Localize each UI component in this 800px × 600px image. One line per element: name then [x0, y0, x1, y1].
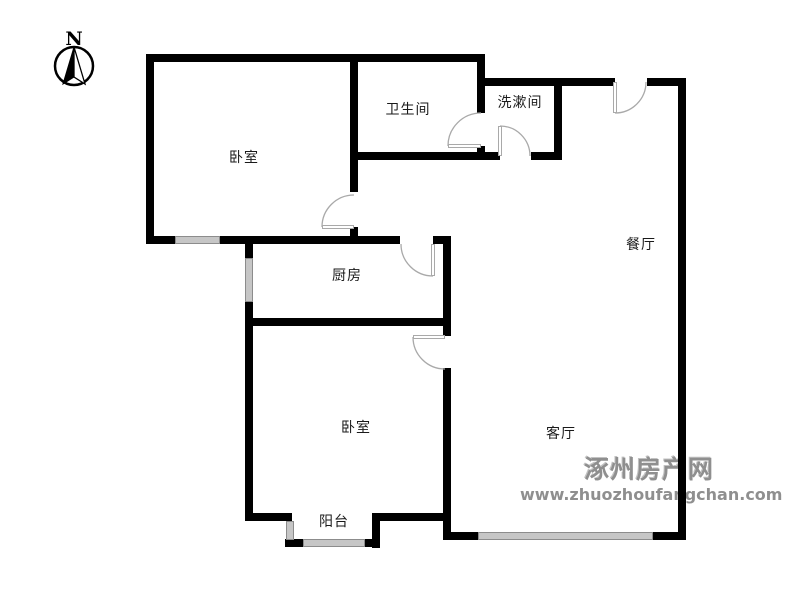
floorplan-canvas: 卧室卫生间洗漱间餐厅厨房卧室客厅阳台 N — [0, 0, 800, 600]
room-label-washroom: 洗漱间 — [498, 95, 543, 111]
wall-center-lower — [443, 368, 451, 540]
wall-kitchen-left-lower — [245, 302, 253, 521]
door-leaf-washroom-door — [499, 127, 502, 156]
compass-north-label: N — [65, 28, 82, 50]
door-leaf-entrance-door — [614, 83, 617, 113]
window-balcony-bottom-window — [303, 540, 365, 547]
wall-top-right-a — [477, 78, 615, 86]
wall-mid-right — [433, 236, 451, 244]
wall-right-outer — [678, 78, 686, 540]
wall-bed2-bottom-right — [372, 513, 451, 521]
room-label-kitchen: 厨房 — [332, 268, 362, 284]
door-leaf-bedroom2-door — [414, 336, 445, 339]
room-label-bathroom: 卫生间 — [386, 102, 431, 118]
wall-washroom-right — [554, 78, 562, 160]
walls-layer — [146, 54, 686, 548]
compass-needle-dark-half — [63, 47, 74, 84]
wall-top-main — [146, 54, 485, 62]
room-label-living-room: 客厅 — [546, 425, 576, 442]
window-living-bottom-window — [478, 533, 653, 540]
wall-balcony-right — [372, 513, 380, 548]
door-leaf-kitchen-door — [432, 245, 435, 276]
wall-kitchen-bottom — [245, 318, 451, 326]
wall-kitchen-left-upper — [245, 244, 253, 258]
door-leaf-bedroom1-door — [323, 226, 354, 229]
wall-bed1-right-lower — [350, 227, 358, 244]
wall-left-outer — [146, 54, 154, 244]
room-labels-layer: 卧室卫生间洗漱间餐厅厨房卧室客厅阳台 — [229, 95, 656, 530]
room-label-bedroom-1: 卧室 — [229, 149, 259, 166]
wall-bath-right-upper — [477, 54, 485, 113]
room-label-bedroom-2: 卧室 — [341, 419, 371, 436]
window-bedroom1-window — [175, 237, 220, 244]
compass-needle-light-half — [74, 47, 85, 84]
window-kitchen-left-window — [246, 258, 253, 302]
wall-mid-center — [220, 236, 400, 244]
room-label-dining-room: 餐厅 — [626, 237, 656, 253]
wall-bath-right-lower — [477, 146, 485, 160]
compass-rose: N — [55, 28, 93, 85]
wall-balcony-corner-left — [285, 539, 303, 547]
wall-bed1-right-upper — [350, 54, 358, 192]
wall-center-upper — [443, 244, 451, 336]
floorplan-page: 涿州房产网 www.zhuozhoufangchan.com 卧室卫生间洗漱间餐… — [0, 0, 800, 600]
room-label-balcony: 阳台 — [319, 514, 349, 530]
door-leaf-bathroom-door — [449, 145, 481, 148]
window-balcony-left-window — [287, 521, 294, 540]
